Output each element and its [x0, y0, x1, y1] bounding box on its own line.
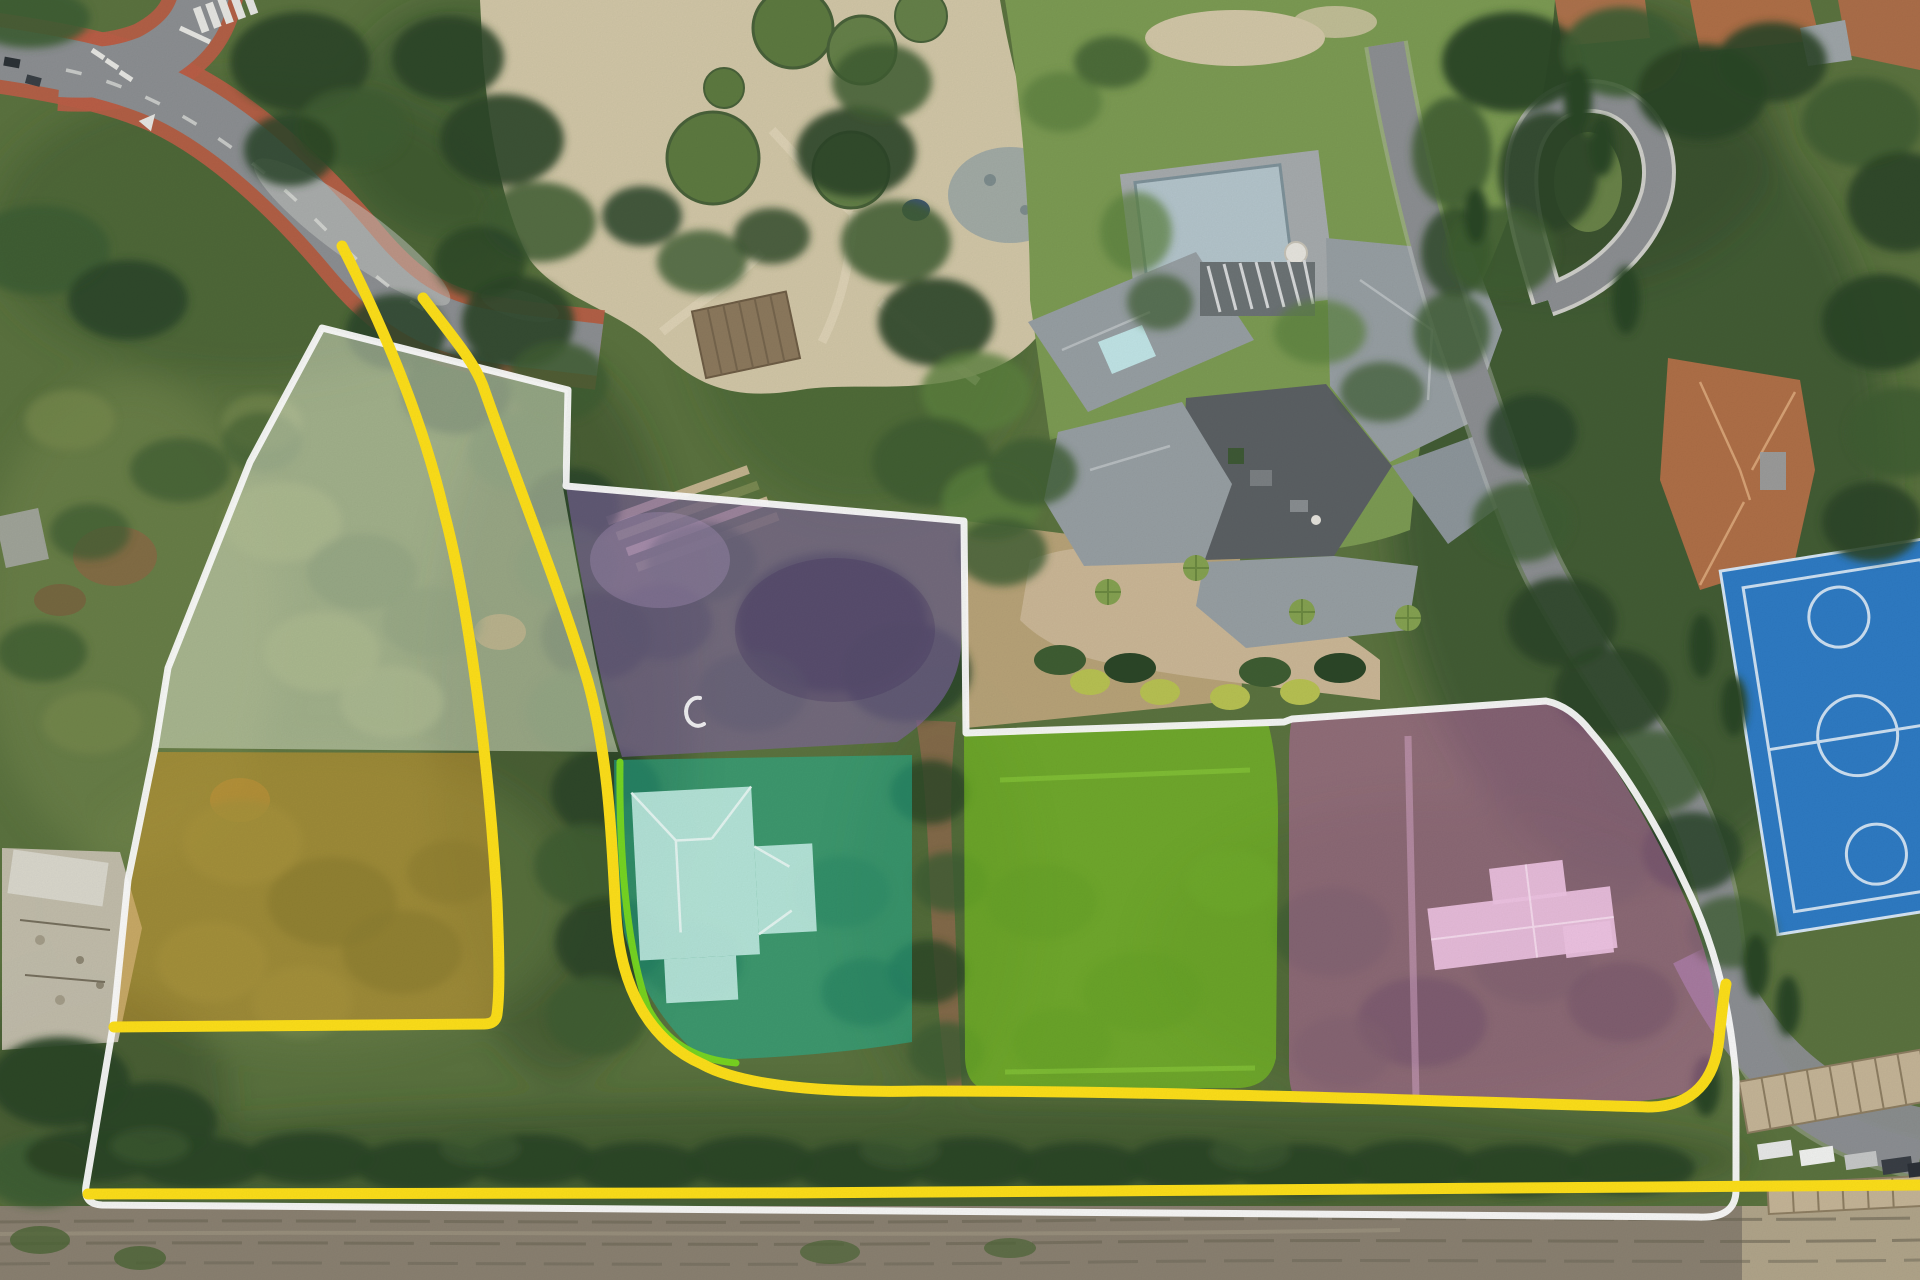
photo-grain [0, 0, 1920, 1280]
screenshot-stage [0, 0, 1920, 1280]
aerial-photo [0, 0, 1920, 1280]
